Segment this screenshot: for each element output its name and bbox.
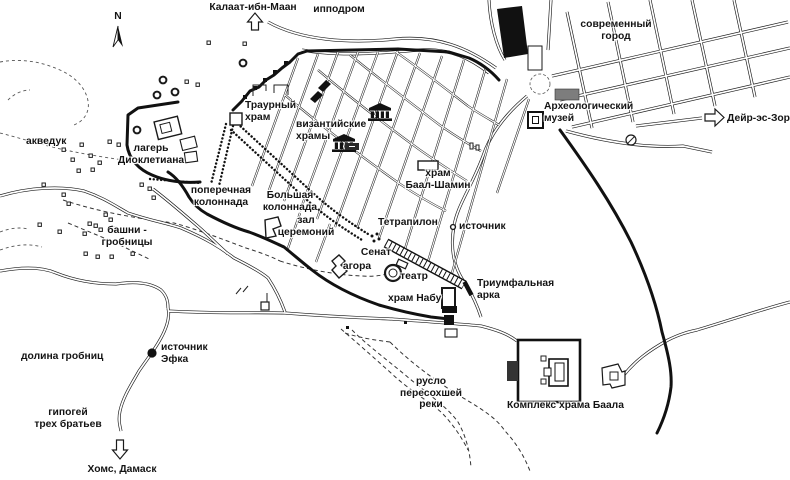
roundabout-icon — [626, 135, 636, 145]
label-dry-riverbed: русло пересохшей реки — [400, 376, 462, 411]
label-great-colonnade: Большая колоннада — [263, 190, 317, 213]
label-transverse-colonnade: поперечная колоннада — [191, 185, 251, 208]
right-arrow-icon — [705, 109, 724, 126]
label-hippodrome: ипподром — [313, 4, 365, 16]
funerary-temple-building — [230, 113, 242, 125]
label-ceremony-hall: зал церемоний — [278, 215, 335, 238]
efqa-spring-icon — [147, 348, 156, 357]
label-bel-temple-complex: Комплекс храма Баала — [507, 400, 624, 412]
modern-white-building — [528, 46, 542, 70]
label-funerary-temple: Траурный храм — [245, 100, 296, 123]
east-small-building — [602, 364, 625, 388]
label-homs-damascus: Хомс, Дамаск — [88, 464, 157, 476]
label-theater: театр — [400, 271, 428, 283]
label-hypogeum: гипогей трех братьев — [34, 407, 101, 430]
modern-black-building — [497, 6, 528, 58]
label-efqa-spring: источник Эфка — [161, 342, 208, 365]
tetrapylon-icon — [371, 233, 381, 243]
triumphal-arch-icon — [462, 281, 473, 296]
compass-needle-icon — [113, 26, 123, 47]
byzantine-temple-icon-1 — [368, 103, 392, 121]
down-arrow-icon — [113, 440, 128, 459]
label-byzantine-churches: византийские храмы — [296, 119, 366, 142]
label-tetrapylon: Тетрапилон — [378, 217, 438, 229]
label-archaeological-museum: Археологический музей — [544, 101, 633, 124]
spring-icon — [451, 225, 456, 230]
label-tombs-valley: долина гробниц — [21, 351, 103, 363]
museum-building — [555, 89, 579, 100]
label-aqueduct: акведук — [26, 136, 66, 148]
label-kalaat-ibn-maan: Калаат-ибн-Маан — [209, 2, 296, 14]
label-baal-shamin: храм Баал-Шамин — [405, 168, 470, 191]
up-arrow-icon — [248, 13, 263, 30]
compass-n-label: N — [114, 11, 121, 23]
label-diocletian-camp: лагерь Диоклетиана — [118, 143, 184, 166]
label-deir-ez-zor: Дейр-эс-Зор — [727, 113, 790, 125]
label-triumphal-arch: Триумфальная арка — [477, 278, 554, 301]
roadside-ruin-marks — [236, 286, 407, 329]
label-modern-city: современный город — [580, 19, 651, 42]
label-nabu-temple: храм Набу — [388, 293, 441, 305]
palmyra-site-map: N Калаат-ибн-Маан ипподром современный г… — [0, 0, 790, 480]
label-agora: агора — [343, 261, 371, 273]
museum-icon — [528, 112, 543, 128]
label-senate: Сенат — [361, 247, 391, 259]
label-tower-tombs: башни - гробницы — [102, 225, 153, 248]
bel-temple-complex — [507, 340, 580, 402]
label-spring: источник — [459, 221, 506, 233]
nabu-temple-building — [442, 288, 457, 337]
plaza-circle — [530, 74, 550, 94]
